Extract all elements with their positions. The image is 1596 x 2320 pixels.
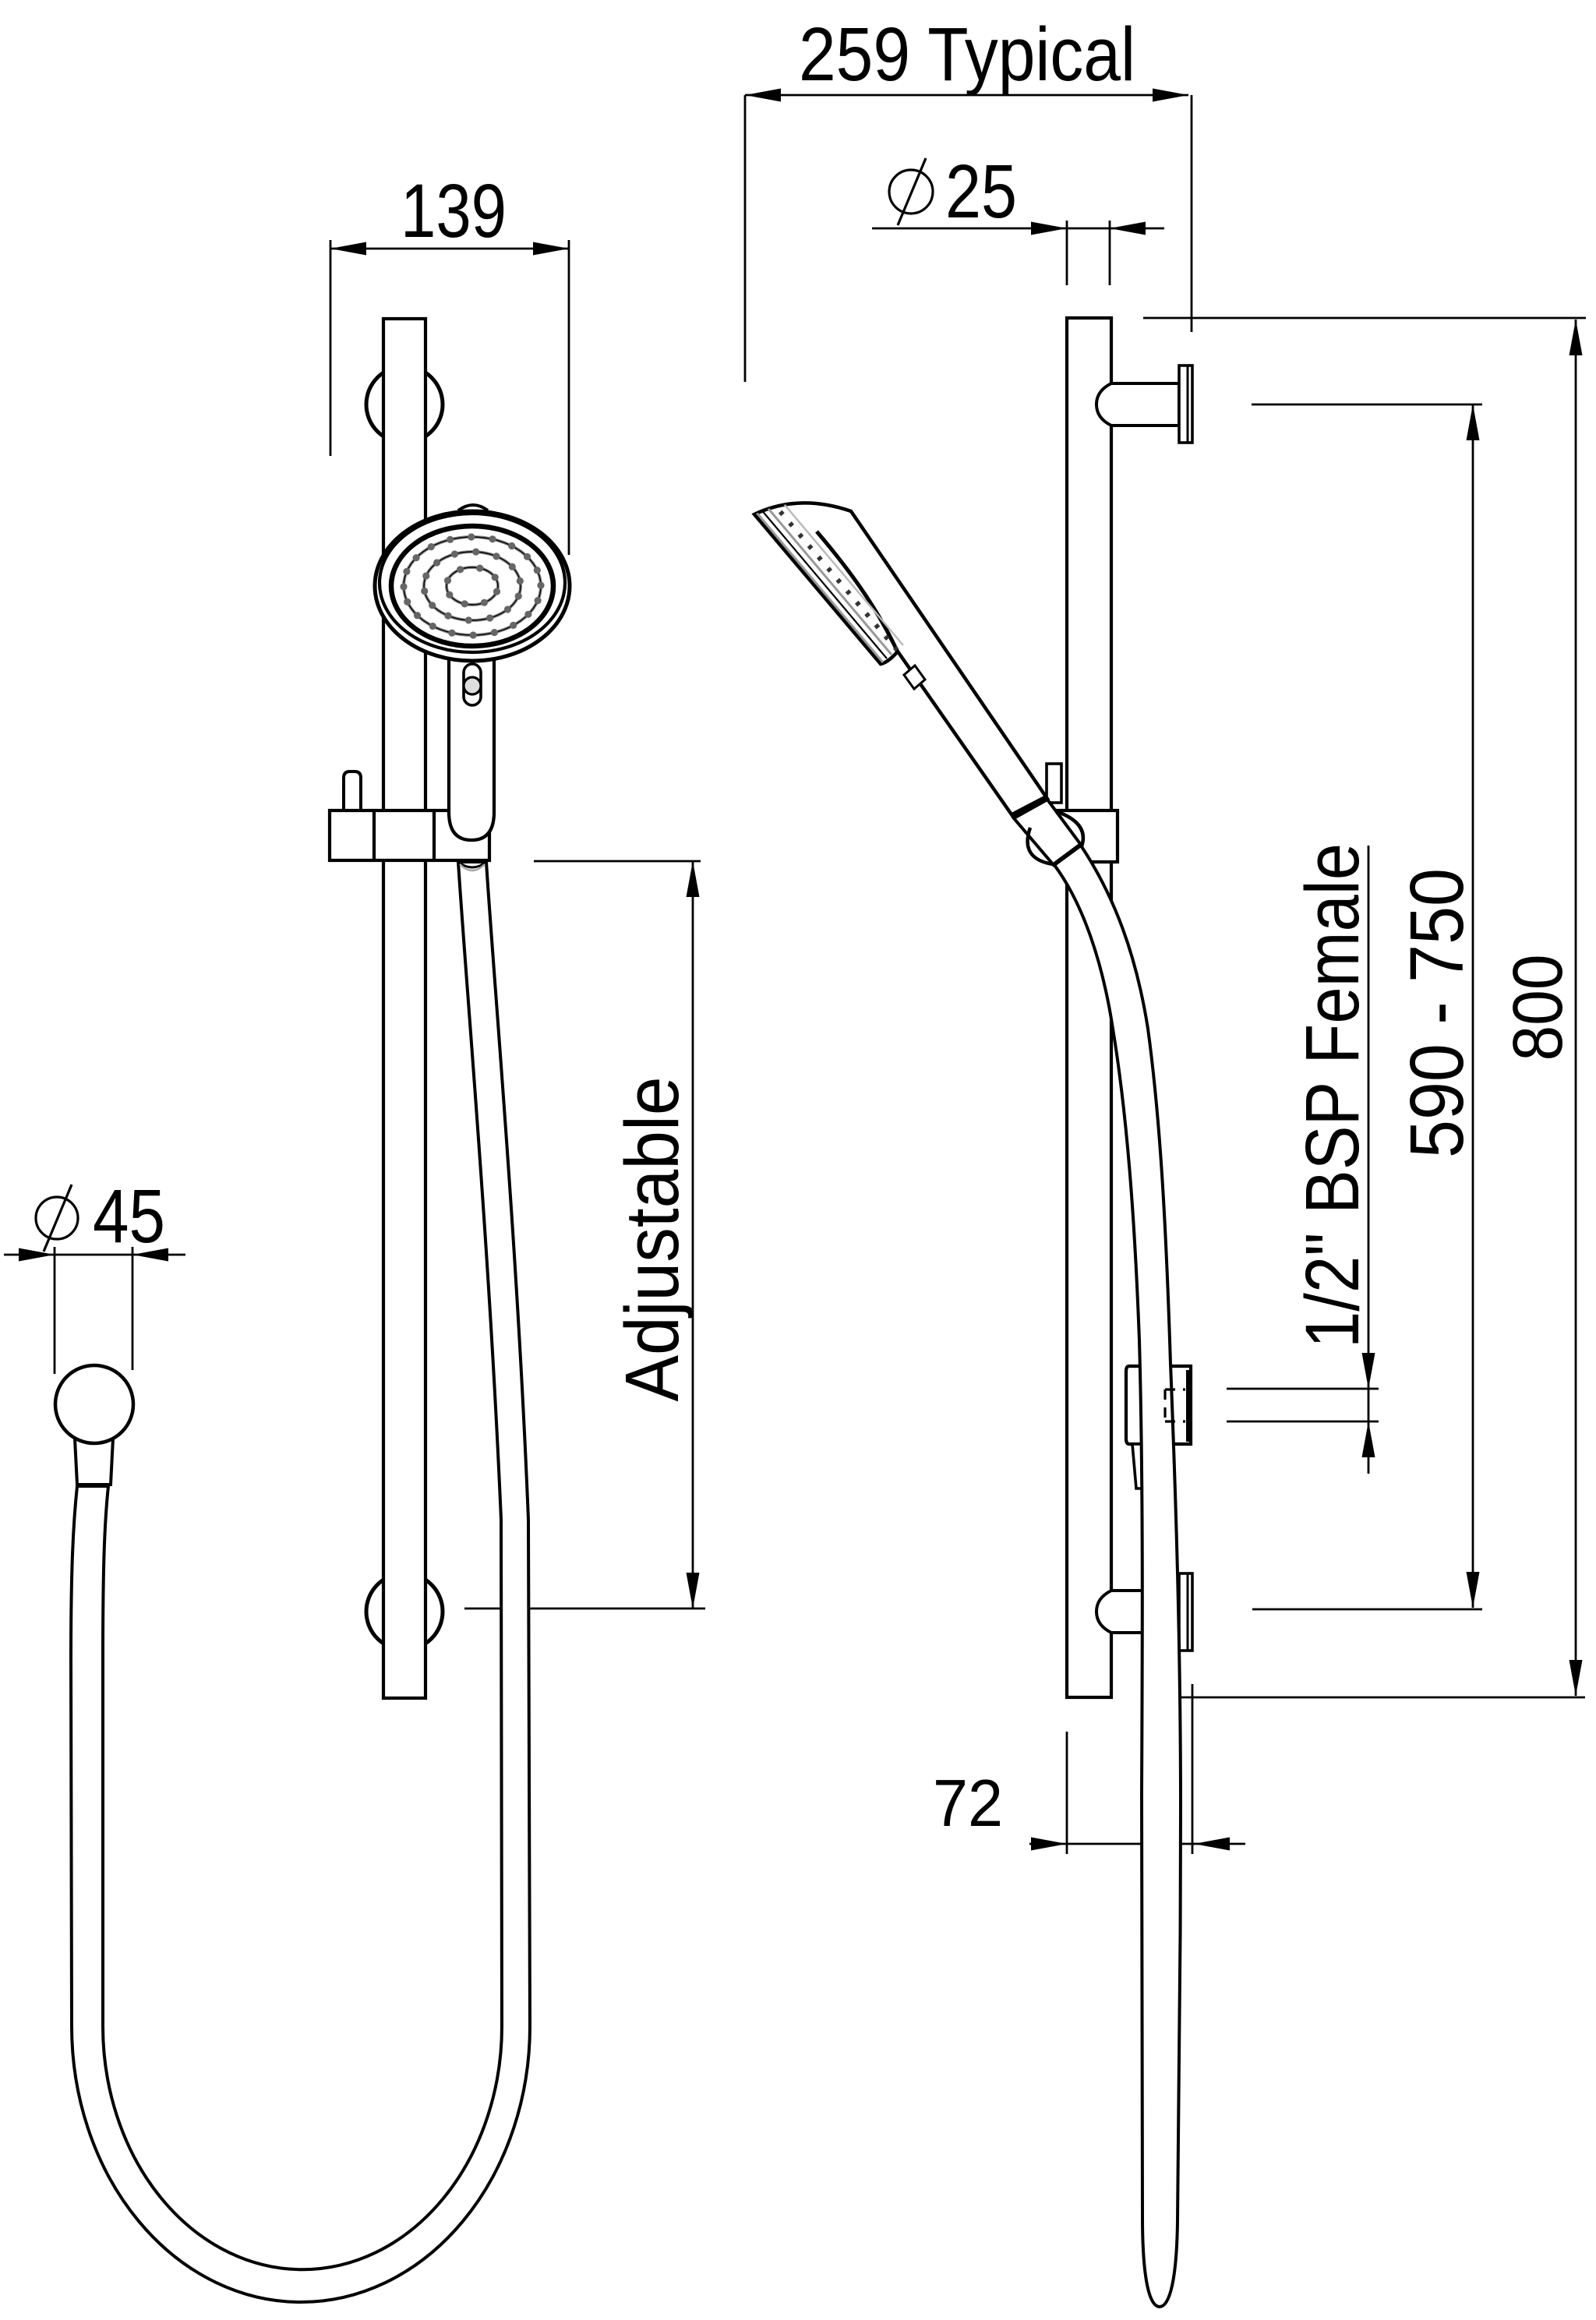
svg-text:590 - 750: 590 - 750 [1394,868,1479,1158]
svg-text:259 Typical: 259 Typical [799,12,1135,97]
svg-text:Adjustable: Adjustable [609,1077,694,1402]
svg-text:72: 72 [933,1767,1003,1841]
svg-text:1/2" BSP Female: 1/2" BSP Female [1290,843,1375,1348]
svg-text:45: 45 [93,1174,165,1259]
svg-text:800: 800 [1499,955,1577,1061]
svg-text:139: 139 [401,168,507,253]
svg-text:25: 25 [945,149,1017,234]
